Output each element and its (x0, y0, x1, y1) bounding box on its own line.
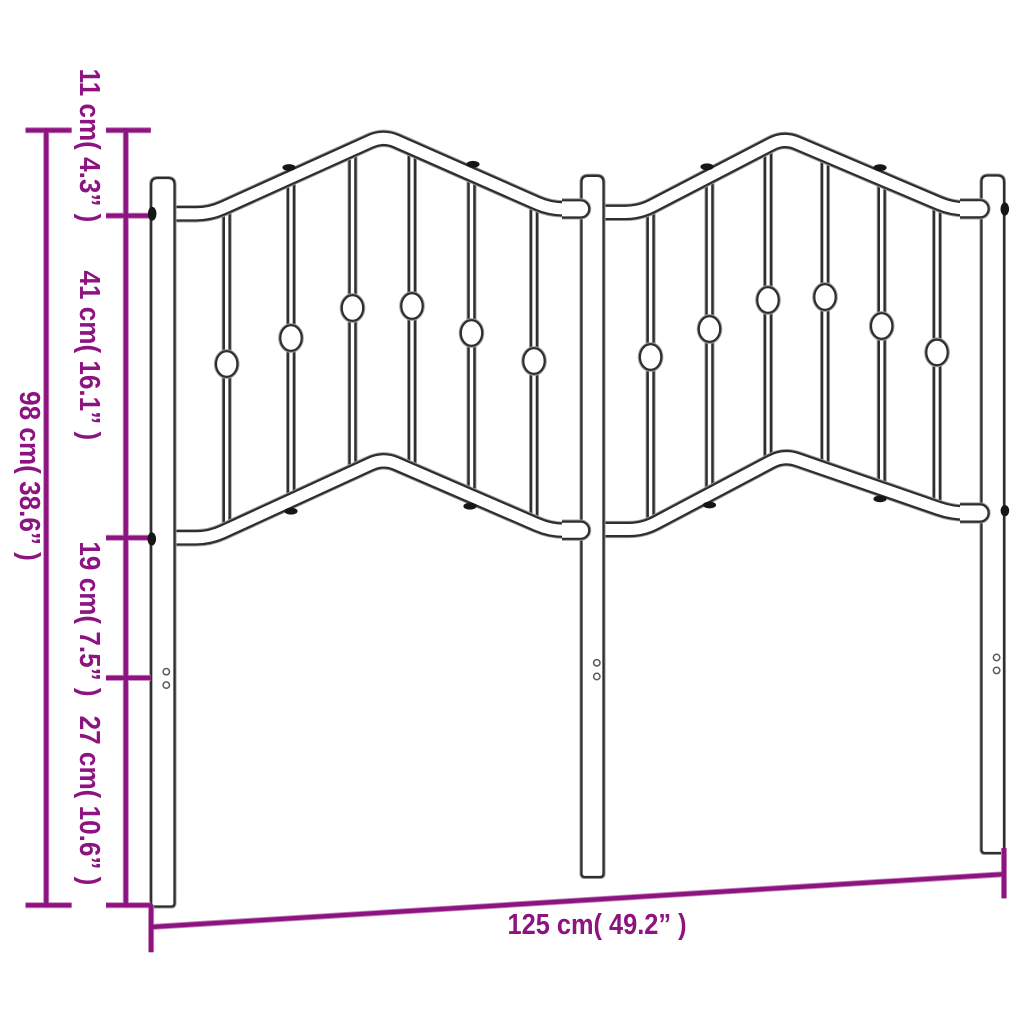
svg-text:41 cm( 16.1” ): 41 cm( 16.1” ) (74, 270, 107, 440)
svg-text:11 cm( 4.3” ): 11 cm( 4.3” ) (74, 69, 107, 223)
svg-text:125 cm( 49.2” ): 125 cm( 49.2” ) (507, 907, 686, 940)
svg-text:19 cm( 7.5” ): 19 cm( 7.5” ) (74, 541, 107, 696)
svg-text:27 cm( 10.6” ): 27 cm( 10.6” ) (74, 716, 107, 886)
svg-text:98 cm( 38.6” ): 98 cm( 38.6” ) (14, 391, 47, 561)
